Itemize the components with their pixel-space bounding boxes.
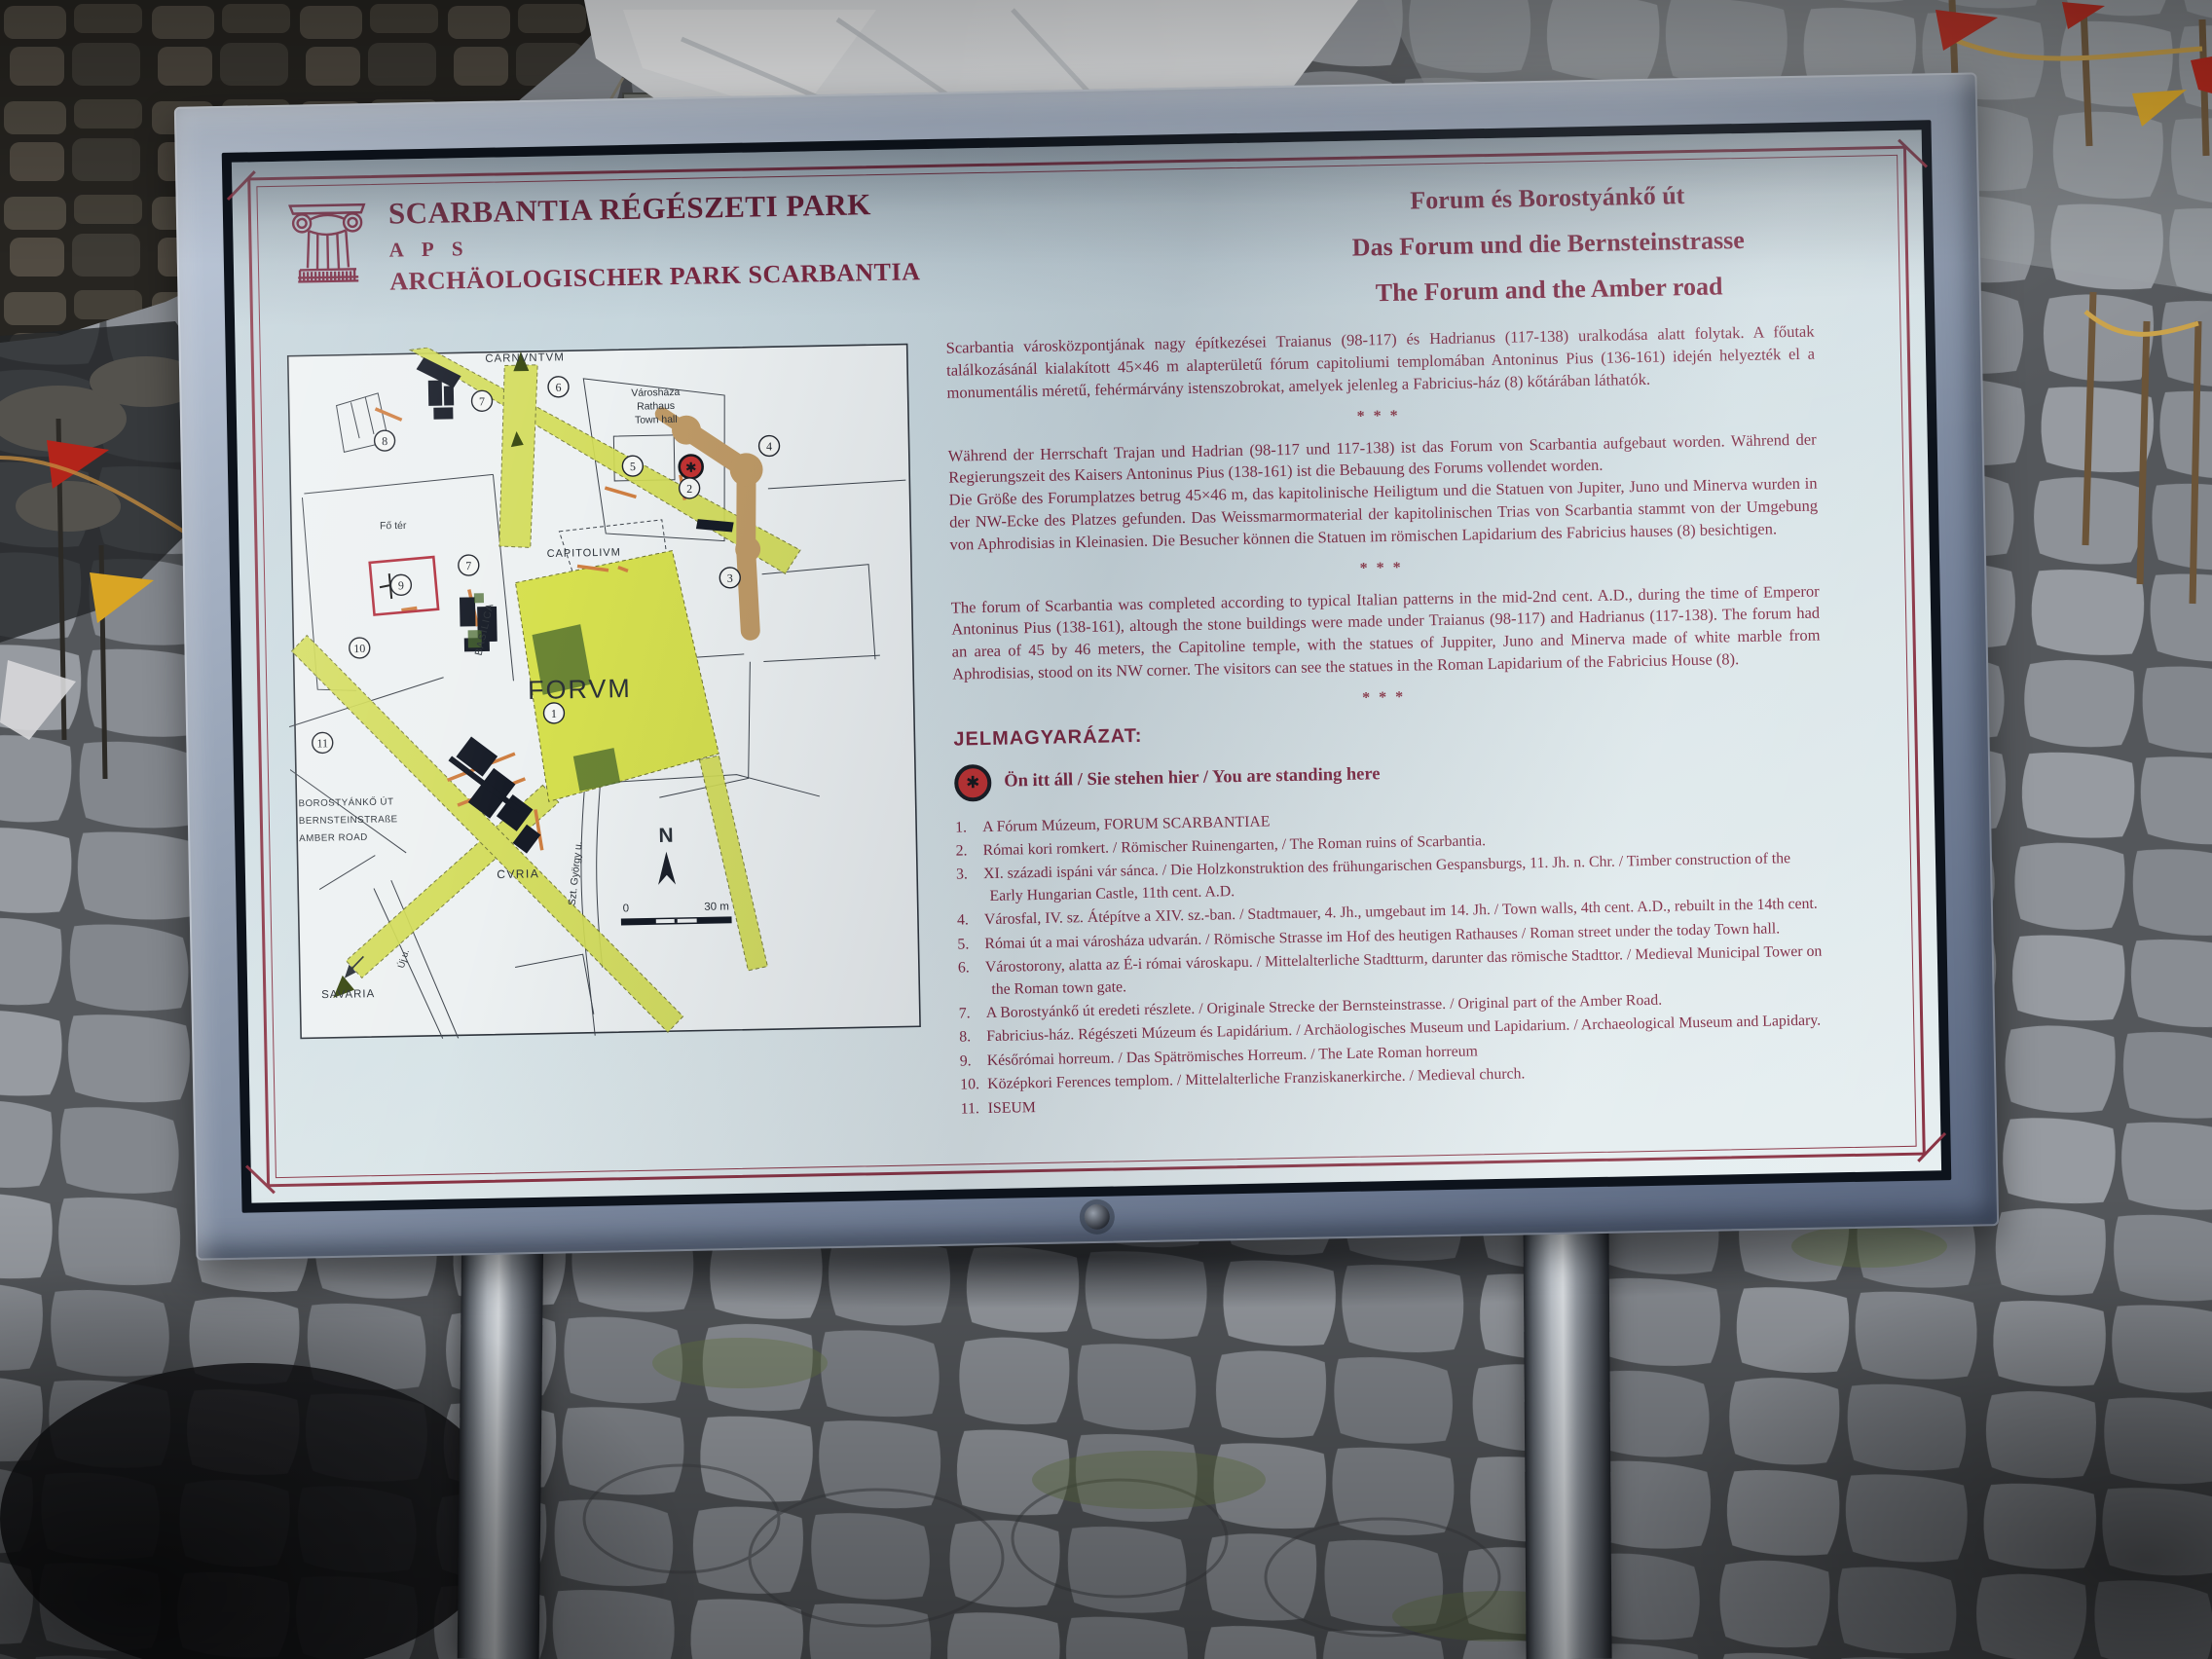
- legend-item-number: 10.: [960, 1074, 987, 1096]
- label-fo-ter: Fő tér: [380, 521, 407, 533]
- title-block-left: SCARBANTIA RÉGÉSZETI PARK A P S ARCHÄOLO…: [388, 186, 921, 296]
- label-curia: CVRIA: [497, 867, 539, 882]
- legend-item-number: 2.: [955, 840, 982, 863]
- legend-item-number: 4.: [957, 909, 984, 932]
- legend-item-number: 9.: [960, 1051, 987, 1073]
- you-are-here-text: Ön itt áll / Sie stehen hier / You are s…: [1004, 764, 1381, 792]
- marker-7a: 7: [471, 391, 492, 412]
- marker-4: 4: [758, 436, 779, 457]
- you-are-here-line: ✱ Ön itt áll / Sie stehen hier / You are…: [954, 748, 1824, 801]
- label-amber-hu: BOROSTYÁNKŐ ÚT: [298, 797, 393, 810]
- marker-2: 2: [679, 478, 699, 498]
- intro-paragraph-hu: Scarbantia városközpontjának nagy építke…: [945, 321, 1815, 404]
- svg-text:3: 3: [727, 571, 733, 585]
- subtitle-hu: Forum és Borostyánkő út: [1350, 172, 1744, 226]
- marker-10: 10: [350, 638, 370, 658]
- legend-item-number: 8.: [959, 1026, 986, 1049]
- marker-11: 11: [313, 733, 333, 754]
- sign-panel: SCARBANTIA RÉGÉSZETI PARK A P S ARCHÄOLO…: [232, 129, 1941, 1202]
- label-savaria: SAVARIA: [321, 989, 375, 1002]
- label-amber-en: AMBER ROAD: [299, 832, 368, 844]
- legend-item-number: 1.: [955, 817, 982, 839]
- svg-text:4: 4: [766, 440, 772, 454]
- svg-text:5: 5: [630, 460, 636, 473]
- site-map: CARNVNTVM Városháza Rathaus Town hall Fő…: [282, 339, 929, 1169]
- information-sign: SCARBANTIA RÉGÉSZETI PARK A P S ARCHÄOLO…: [174, 72, 1999, 1260]
- scale-zero: 0: [623, 903, 630, 915]
- label-amber-de: BERNSTEINSTRAßE: [299, 815, 398, 828]
- panel-content: SCARBANTIA RÉGÉSZETI PARK A P S ARCHÄOLO…: [279, 164, 1895, 1168]
- label-town-hall-en: Town hall: [635, 415, 678, 426]
- label-town-hall-hu: Városháza: [631, 387, 680, 399]
- marker-1: 1: [543, 703, 564, 723]
- label-capitolium: CAPITOLIVM: [547, 547, 621, 560]
- sign-post-left: [458, 1225, 544, 1659]
- svg-text:6: 6: [555, 381, 561, 394]
- park-title-de: ARCHÄOLOGISCHER PARK SCARBANTIA: [389, 257, 921, 296]
- scale-thirty: 30 m: [704, 902, 729, 913]
- label-carnuntum: CARNVNTVM: [485, 352, 565, 366]
- park-title-hu: SCARBANTIA RÉGÉSZETI PARK: [388, 186, 920, 231]
- legend-heading: JELMAGYARÁZAT:: [953, 712, 1822, 751]
- svg-text:9: 9: [398, 579, 404, 593]
- text-column: Scarbantia városközpontjának nagy építke…: [945, 320, 1894, 1157]
- legend-item-text: ISEUM: [988, 1099, 1036, 1117]
- legend-item-text: A Fórum Múzeum, FORUM SCARBANTIAE: [982, 813, 1271, 835]
- legend-item-number: 11.: [960, 1098, 987, 1121]
- marker-3: 3: [719, 568, 740, 588]
- svg-text:✱: ✱: [685, 461, 697, 476]
- section-divider: ***: [953, 681, 1822, 715]
- marker-9: 9: [390, 575, 411, 596]
- legend-item-number: 5.: [957, 934, 984, 956]
- svg-text:8: 8: [382, 434, 387, 448]
- marker-8: 8: [374, 430, 394, 451]
- svg-text:2: 2: [686, 482, 692, 496]
- svg-text:7: 7: [479, 395, 485, 409]
- svg-text:10: 10: [353, 642, 365, 655]
- svg-text:11: 11: [316, 737, 328, 751]
- legend-item-number: 3.: [956, 864, 983, 886]
- title-block-right: Forum és Borostyánkő út Das Forum und di…: [1350, 167, 1872, 316]
- label-town-hall-de: Rathaus: [637, 401, 675, 413]
- svg-text:7: 7: [465, 559, 471, 572]
- legend-list: 1.A Fórum Múzeum, FORUM SCARBANTIAE 2.Ró…: [955, 800, 1829, 1121]
- svg-text:N: N: [658, 825, 674, 847]
- you-are-here-marker: ✱: [680, 456, 703, 479]
- panel-header: SCARBANTIA RÉGÉSZETI PARK A P S ARCHÄOLO…: [285, 167, 1872, 337]
- marker-6: 6: [548, 377, 569, 397]
- marker-7b: 7: [459, 555, 479, 575]
- park-title-abbr: A P S: [388, 228, 920, 262]
- photo-scene: SCARBANTIA RÉGÉSZETI PARK A P S ARCHÄOLO…: [0, 0, 2212, 1659]
- legend-item-number: 6.: [958, 957, 985, 979]
- sign-post-right: [1523, 1213, 1611, 1659]
- corinthian-capital-icon: [285, 197, 371, 292]
- subtitle-de: Das Forum und die Bernsteinstrasse: [1351, 218, 1745, 272]
- label-forum: FORVM: [528, 674, 632, 705]
- you-are-here-icon: ✱: [954, 763, 992, 801]
- legend-item-number: 7.: [959, 1003, 986, 1025]
- subtitle-en: The Forum and the Amber road: [1352, 264, 1746, 317]
- svg-text:1: 1: [551, 707, 557, 720]
- intro-paragraph-en: The forum of Scarbantia was completed ac…: [951, 580, 1822, 685]
- section-divider: ***: [947, 399, 1816, 433]
- section-divider: ***: [950, 551, 1819, 585]
- marker-5: 5: [622, 456, 643, 476]
